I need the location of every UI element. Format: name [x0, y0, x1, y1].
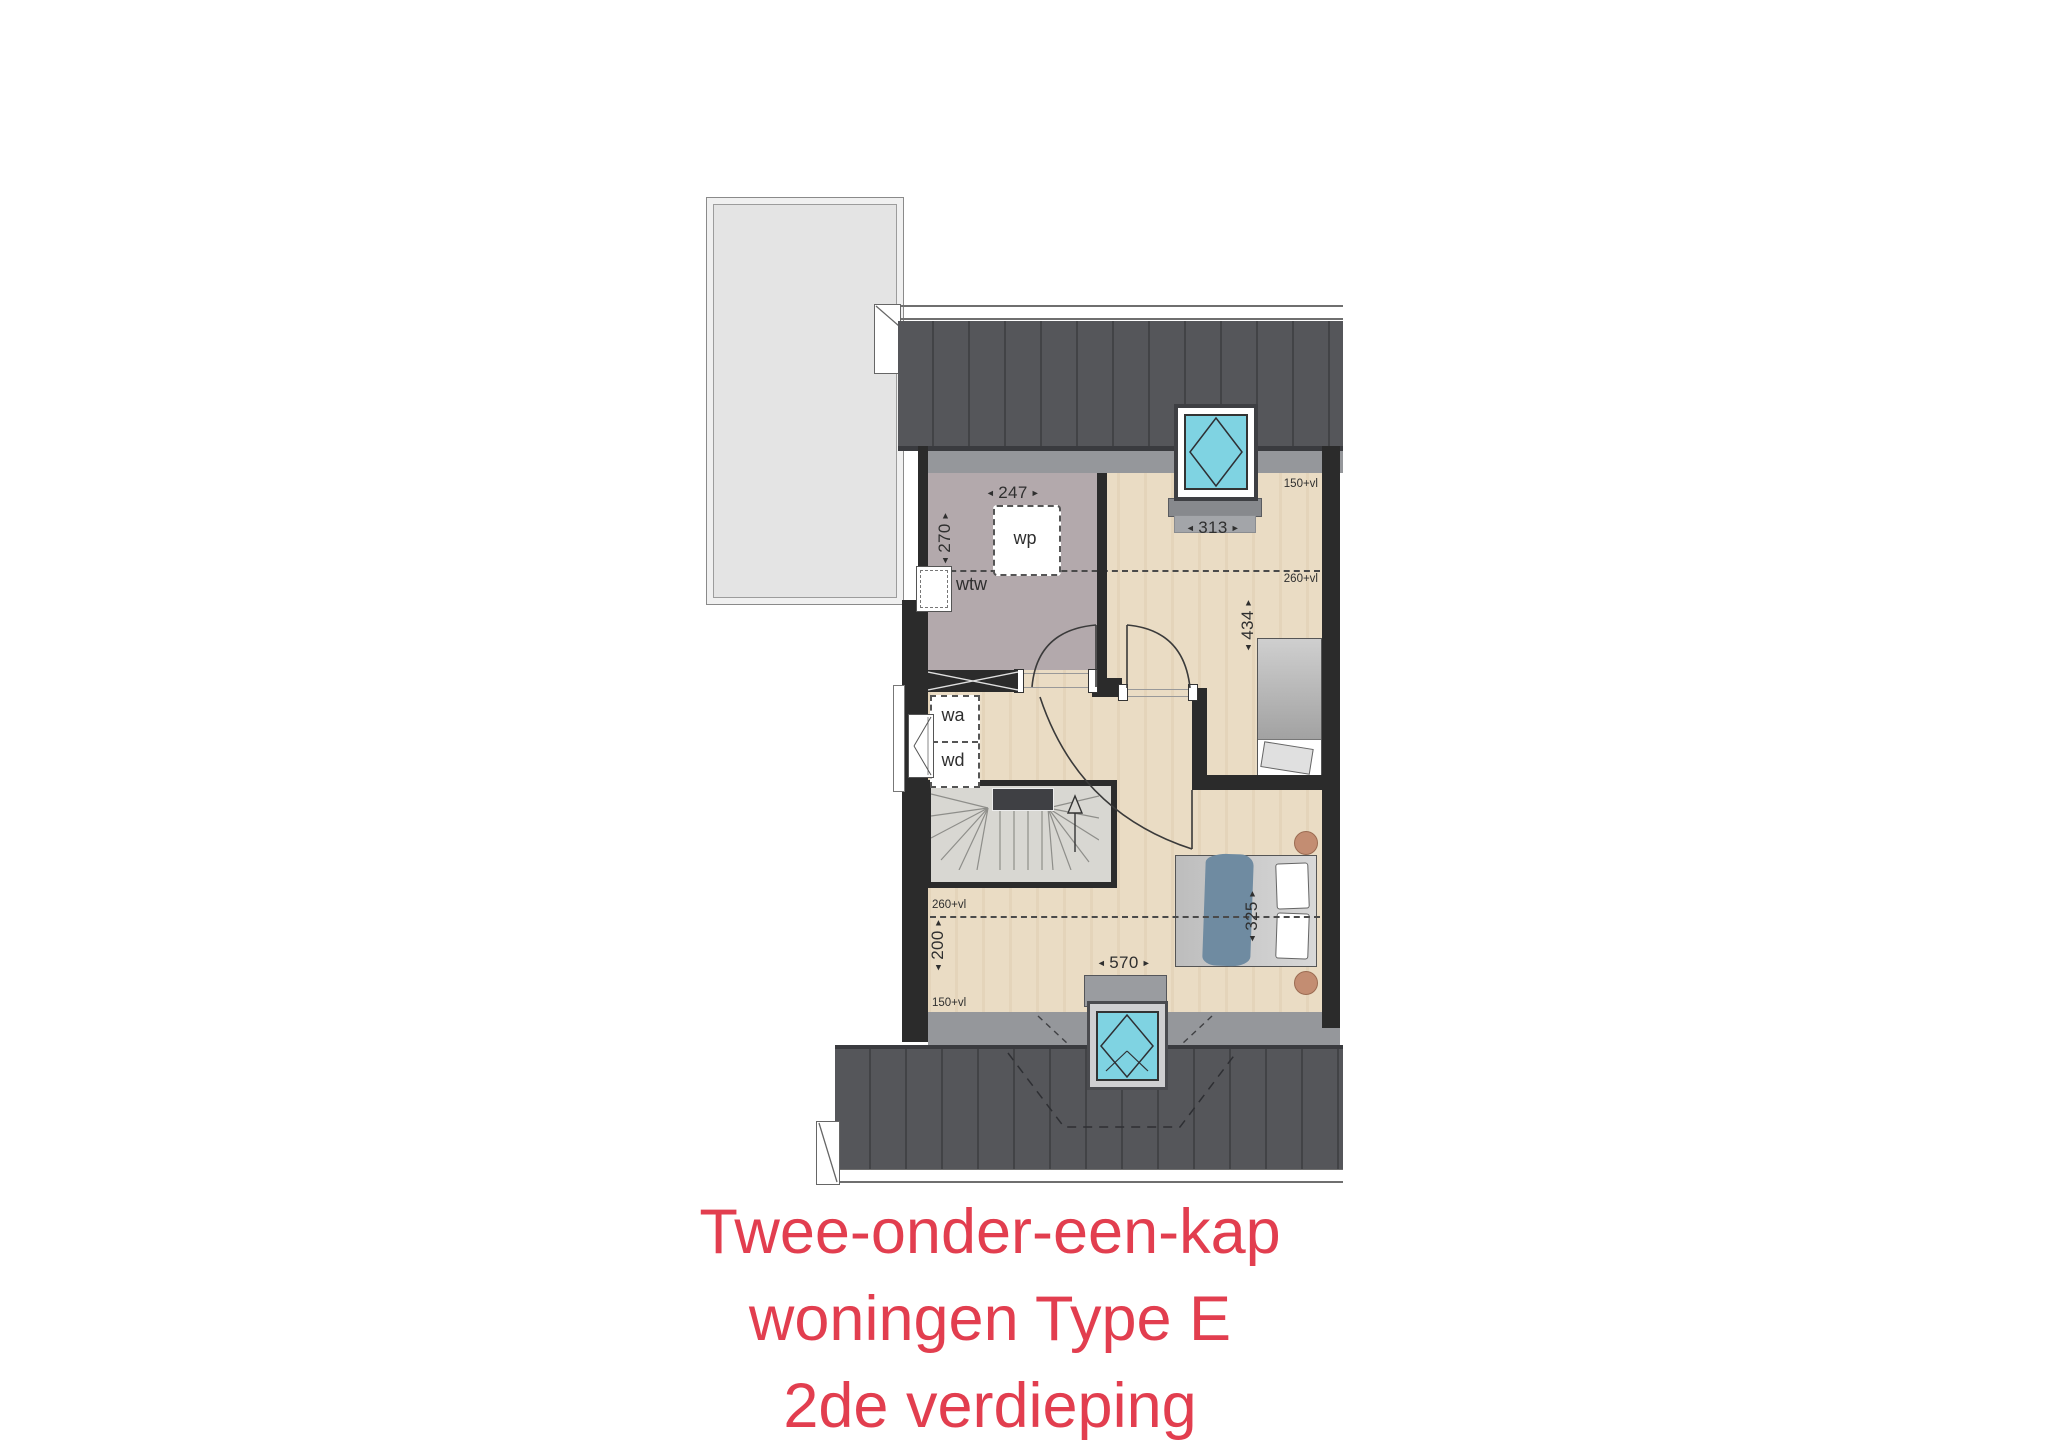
washer-label: wa	[930, 705, 976, 726]
wall-left-lower	[902, 600, 928, 1042]
dim-arrow-left: ◄	[986, 488, 995, 498]
double-bed-pillow-bottom	[1275, 912, 1310, 959]
dim-bedroom-bottom-left: ◄200►	[928, 905, 948, 985]
window-sill-bracket	[893, 685, 905, 792]
heat-recovery-label: wtw	[956, 574, 987, 595]
title-line-1: Twee-onder-een-kap	[590, 1196, 1390, 1268]
bottom-gutter-corner	[816, 1121, 840, 1185]
dryer-label: wd	[930, 750, 976, 771]
height-marker-mid-left: 260+vl	[932, 899, 966, 911]
title-line-2: woningen Type E	[590, 1283, 1390, 1355]
dim-arrow-right: ►	[1247, 889, 1257, 898]
nightstand-bottom	[1294, 971, 1318, 995]
dim-technical-width: ◄247►	[973, 483, 1053, 503]
top-gutter-line-inner	[875, 318, 1343, 320]
neighbor-flat-roof-inner	[713, 204, 897, 598]
dim-arrow-left: ◄	[1243, 643, 1253, 652]
height-marker-mid-right: 260+vl	[1218, 573, 1318, 585]
dim-bedroom-top-depth: ◄434►	[1238, 585, 1258, 665]
dim-arrow-left: ◄	[940, 556, 950, 565]
dim-arrow-right: ►	[940, 511, 950, 520]
ceiling-height-dash-top	[930, 570, 1320, 572]
title-line-3: 2de verdieping	[590, 1370, 1390, 1442]
height-marker-top-right: 150+vl	[1218, 478, 1318, 490]
dim-arrow-right: ►	[1142, 958, 1151, 968]
bottom-gutter-line-outer	[835, 1181, 1343, 1183]
skylight-bottom-glass	[1096, 1011, 1159, 1081]
double-bed-pillow-top	[1275, 862, 1310, 909]
dim-bedroom-top-width: ◄313►	[1173, 518, 1253, 538]
height-marker-bottom-left: 150+vl	[932, 997, 966, 1009]
dim-technical-depth: ◄270►	[935, 498, 955, 578]
roof-slope-top	[898, 321, 1343, 451]
door-swing-arcs	[1000, 590, 1350, 860]
dim-arrow-left: ◄	[1186, 523, 1195, 533]
roof-plank-texture	[898, 321, 1343, 446]
dim-arrow-left: ◄	[1097, 958, 1106, 968]
dim-arrow-right: ►	[933, 918, 943, 927]
neighbor-flat-roof	[706, 197, 904, 605]
dim-arrow-right: ►	[1031, 488, 1040, 498]
dim-arrow-left: ◄	[933, 963, 943, 972]
dim-arrow-left: ◄	[1247, 934, 1257, 943]
skylight-bottom	[1087, 1001, 1168, 1090]
heat-pump-label: wp	[993, 528, 1057, 549]
floorplan-page: wa wd wp wtw	[0, 0, 2048, 1448]
dim-arrow-right: ►	[1243, 598, 1253, 607]
dim-bed-width: ◄325►	[1242, 876, 1262, 956]
dim-bedroom-bottom-width: ◄570►	[1084, 953, 1164, 973]
top-gutter-line-outer	[875, 305, 1343, 307]
top-gutter-corner	[874, 304, 901, 374]
dim-arrow-right: ►	[1231, 523, 1240, 533]
